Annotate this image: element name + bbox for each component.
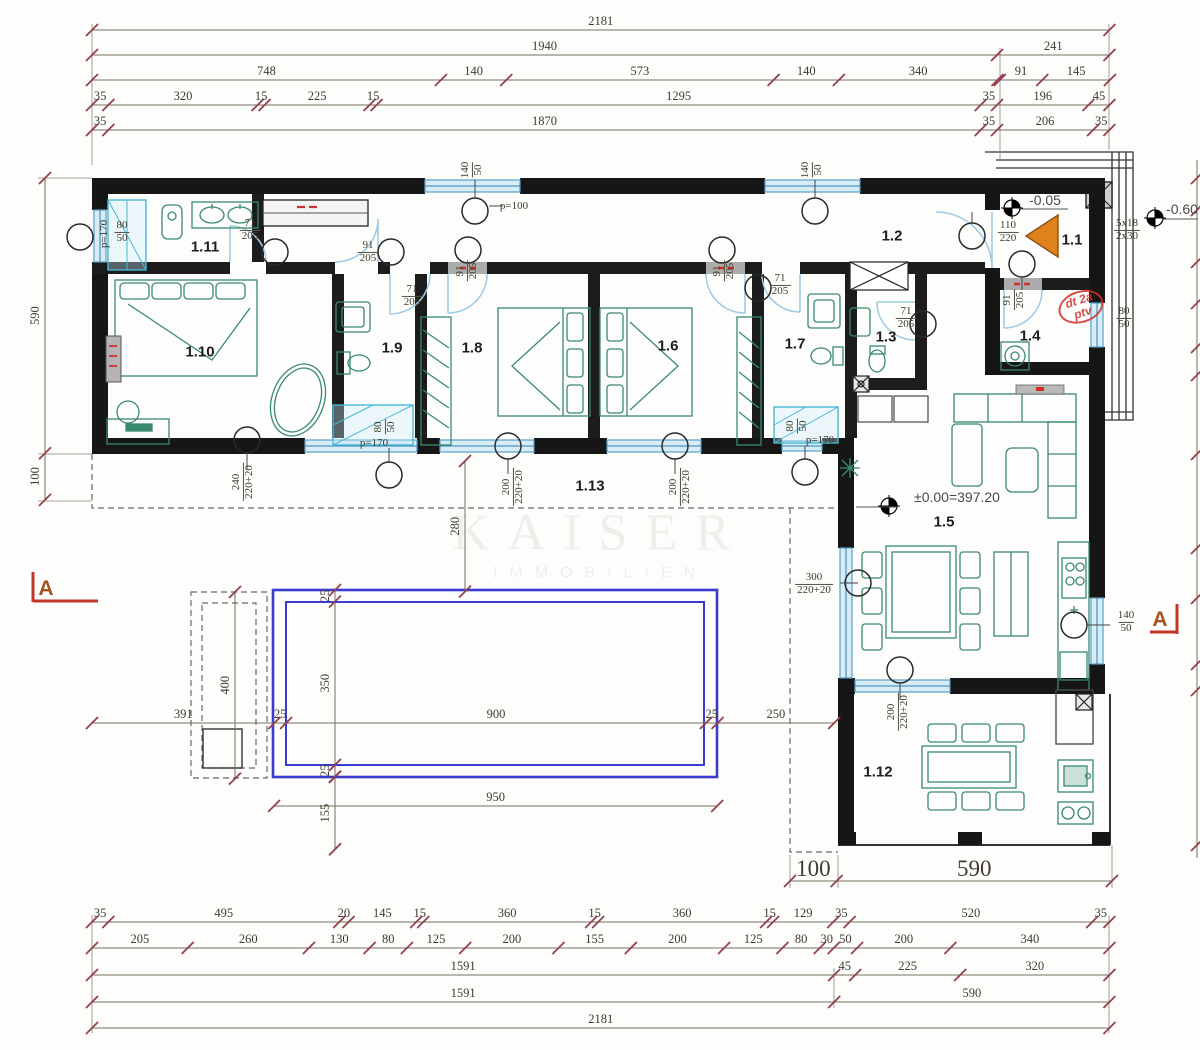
dim-label: 125: [744, 932, 763, 946]
dim-label: 200: [668, 932, 687, 946]
dim-label: 50: [839, 932, 852, 946]
dim-label: 129: [794, 906, 813, 920]
dim-label: 25: [705, 707, 718, 721]
dim-chain-bottom-4: 1591590: [86, 986, 1115, 1008]
dim-label: 2181: [588, 14, 613, 28]
dim-label: 280: [448, 517, 462, 536]
dim-label: 196: [1033, 89, 1052, 103]
dim-label: 1940: [532, 39, 557, 53]
dim-label: 35: [94, 89, 107, 103]
dim-label: 748: [257, 64, 276, 78]
dim-label: 15: [367, 89, 380, 103]
dim-label: 20: [338, 906, 351, 920]
dim-chain-top-3: 74814057314034091145: [86, 64, 1116, 86]
dim-label: 25: [318, 765, 332, 778]
dim-chain-bottom-5: 2181: [86, 1012, 1115, 1034]
dim-label: 15: [413, 906, 426, 920]
dim-chain-top-4: 35320152251512953519645: [86, 89, 1115, 111]
dim-chain-pool-950: 950: [268, 790, 723, 812]
dim-label: 340: [1021, 932, 1040, 946]
dim-chain-left-v: 590100: [28, 172, 51, 506]
dim-label: 15: [763, 906, 776, 920]
dim-label: 130: [330, 932, 349, 946]
dim-label: 91: [1015, 64, 1028, 78]
right-edge-dims: [1191, 160, 1200, 858]
dim-label: 1295: [666, 89, 691, 103]
extension-lines: [38, 24, 1112, 1033]
dim-label: 45: [838, 959, 851, 973]
dim-label: 590: [28, 306, 42, 325]
dim-label: 241: [1044, 39, 1063, 53]
dim-label: 590: [957, 856, 992, 881]
dim-label: 35: [835, 906, 848, 920]
dim-label: 140: [797, 64, 816, 78]
dim-label: 35: [94, 906, 107, 920]
dim-label: 35: [94, 114, 107, 128]
dim-label: 340: [909, 64, 928, 78]
dim-chain-bottom-2: 20526013080125200155200125803050200340: [86, 932, 1115, 954]
dim-label: 1870: [532, 114, 557, 128]
dim-label: 140: [464, 64, 483, 78]
dim-label: 80: [795, 932, 808, 946]
dim-label: 145: [373, 906, 392, 920]
dim-label: 30: [820, 932, 833, 946]
dim-label: 400: [218, 676, 232, 695]
dim-label: 950: [486, 790, 505, 804]
dim-label: 495: [214, 906, 233, 920]
dim-label: 250: [767, 707, 786, 721]
dim-chain-bottom-1: 35495201451536015360151293552035: [86, 906, 1115, 928]
dim-label: 360: [498, 906, 517, 920]
dim-label: 35: [1095, 906, 1108, 920]
dim-label: 360: [673, 906, 692, 920]
dim-label: 35: [983, 89, 996, 103]
dim-chain-terrace-280: 280: [448, 455, 471, 598]
dim-label: 15: [588, 906, 601, 920]
dim-label: 900: [487, 707, 506, 721]
dim-label: 391: [174, 707, 193, 721]
dim-label: 35: [1095, 114, 1108, 128]
floor-plan-drawing: 2181194024174814057314034091145353201522…: [0, 0, 1200, 1050]
dim-label: 590: [962, 986, 981, 1000]
dim-label: 45: [1093, 89, 1106, 103]
dim-label: 205: [130, 932, 149, 946]
showers: [108, 200, 838, 445]
dim-chain-top-1: 2181: [86, 14, 1115, 36]
dim-chain-pool-h: 3912590025250: [86, 707, 840, 729]
dim-chain-pool-350: 2535025: [318, 584, 341, 783]
dim-label: 573: [631, 64, 650, 78]
dim-label: 260: [239, 932, 258, 946]
dim-label: 320: [1025, 959, 1044, 973]
dim-label: 155: [585, 932, 604, 946]
dim-label: 225: [308, 89, 327, 103]
dim-label: 145: [1067, 64, 1086, 78]
dim-label: 520: [962, 906, 981, 920]
dim-label: 25: [318, 590, 332, 603]
dim-chain-pool-155: 155: [318, 771, 341, 855]
dim-label: 125: [427, 932, 446, 946]
dim-label: 320: [174, 89, 193, 103]
pool: [273, 590, 717, 777]
dim-label: 1591: [451, 986, 476, 1000]
pool-equipment-pad: [203, 729, 242, 768]
dim-label: 1591: [451, 959, 476, 973]
dim-chain-bottom-3: 159145225320: [86, 959, 1115, 981]
dim-label: 225: [898, 959, 917, 973]
dim-label: 200: [894, 932, 913, 946]
dim-chain-terrace-big: 100590: [784, 856, 1118, 887]
entrance-arrow: [1026, 215, 1058, 257]
dim-label: 100: [796, 856, 831, 881]
dim-chain-pool-400: 400: [218, 586, 241, 785]
dim-chain-top-5: 3518703520635: [86, 114, 1115, 136]
dim-label: 15: [255, 89, 268, 103]
dim-label: 100: [28, 467, 42, 486]
dim-label: 206: [1036, 114, 1055, 128]
floor-plan-canvas: 2181194024174814057314034091145353201522…: [0, 0, 1200, 1050]
dim-label: 2181: [588, 1012, 613, 1026]
dim-label: 25: [274, 707, 287, 721]
dim-label: 200: [502, 932, 521, 946]
dim-label: 35: [983, 114, 996, 128]
dim-label: 155: [318, 804, 332, 823]
level-symbols: [856, 197, 1198, 517]
dim-chain-top-2: 1940241: [86, 39, 1115, 61]
dim-label: 80: [382, 932, 395, 946]
dim-label: 350: [318, 674, 332, 693]
